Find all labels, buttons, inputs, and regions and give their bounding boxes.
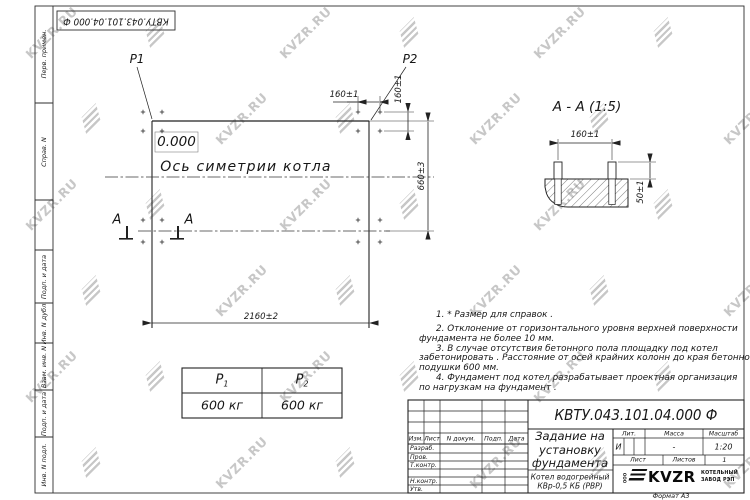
masshtab-value: 1:20 <box>715 442 733 451</box>
side-label-sprav-n: Справ. N <box>40 137 48 167</box>
note-line-4: 3. В случае отсутствия бетонного пола пл… <box>436 344 718 354</box>
note-line-1: 1. * Размер для справок . <box>436 310 553 320</box>
logo-subtitle-1: КОТЕЛЬНЫЙ <box>701 471 738 476</box>
load-point-p2-label: P2 <box>403 52 418 66</box>
drawing-linework <box>0 0 750 500</box>
side-label-podp-data-1: Подп. и дата <box>40 254 48 298</box>
row-tkontr: Т.контр. <box>410 462 437 469</box>
side-label-perv-primen: Перв. примен. <box>40 30 48 79</box>
product-line-2: КВр-0,5 КБ (РВР) <box>537 481 602 490</box>
dim-160-right: 160±1 <box>394 75 404 104</box>
section-view-lines <box>545 162 628 207</box>
side-label-vzam-inv: Взам. инв. N <box>40 345 48 387</box>
col-izm: Изм. <box>409 436 424 443</box>
elevation-mark: 0.000 <box>157 134 196 150</box>
format-label: Формат А3 <box>652 492 689 500</box>
load-table-value-p2: 600 кг <box>281 398 323 413</box>
note-line-5: забетонировать . Расстояние от осей край… <box>419 353 750 363</box>
section-dim-50: 50±1 <box>636 180 646 203</box>
side-label-podp-data-2: Подп. и дата <box>40 391 48 435</box>
title-line-2: установку <box>539 443 601 457</box>
dim-660: 660±3 <box>417 162 427 191</box>
row-razrab: Разраб. <box>410 445 434 452</box>
listov-value: 1 <box>722 456 726 464</box>
row-nkontr: Н.контр. <box>410 478 438 485</box>
load-table-header-p1: P1 <box>216 373 229 388</box>
load-point-p1-label: P1 <box>130 52 145 66</box>
load-table-header-p2: P2 <box>296 373 309 388</box>
drawing-sheet: KVZR.RUKVZR.RUKVZR.RUKVZR.RUKVZR.RUKVZR.… <box>0 0 750 500</box>
dim-2160: 2160±2 <box>244 312 278 322</box>
logo-ooo-prefix: ООО <box>623 473 628 483</box>
title-block-doc-number: КВТУ.043.101.04.000 Ф <box>555 406 718 424</box>
dim-160-top: 160±1 <box>330 90 359 100</box>
side-label-inv-podl: Инв. N подл. <box>40 444 48 487</box>
title-line-3: фундамента <box>532 456 608 470</box>
section-letter-right: A <box>185 213 194 228</box>
row-utv: Утв. <box>410 486 423 493</box>
lit-label: Лит. <box>622 430 636 437</box>
note-line-7: 4. Фундамент под котел разрабатывает про… <box>436 373 737 383</box>
list-label: Лист <box>630 457 646 464</box>
title-line-1: Задание на <box>535 429 605 443</box>
boiler-symmetry-axis-label: Ось симетрии котла <box>160 159 331 175</box>
note-line-6: подушки 600 мм. <box>419 363 499 373</box>
col-list: Лист <box>424 436 440 443</box>
section-letter-left: A <box>113 213 122 228</box>
masshtab-label: Масштаб <box>709 430 738 437</box>
logo-subtitle-2: ЗАВОД РЭП <box>701 478 735 483</box>
kvzr-logo-text: KVZR <box>648 468 696 486</box>
note-line-2: 2. Отклонение от горизонтального уровня … <box>436 324 738 334</box>
col-data: Дата <box>508 436 524 443</box>
col-podp: Подп. <box>484 436 503 443</box>
note-line-8: по нагрузкам на фундамент . <box>419 383 557 393</box>
plan-view-lines <box>105 67 434 328</box>
massa-label: Масса <box>664 430 684 437</box>
top-stamp-doc-number: КВТУ.043.101.04.000 Ф <box>63 15 168 26</box>
section-view-title: А - А (1:5) <box>553 99 621 115</box>
massa-value: - <box>673 442 676 451</box>
col-n-dokum: N докум. <box>447 436 476 443</box>
note-line-3: фундамента не более 10 мм. <box>419 334 554 344</box>
listov-label: Листов <box>672 457 695 464</box>
row-prov: Пров. <box>410 454 428 461</box>
side-label-inv-dubl: Инв. N дубл. <box>40 302 48 345</box>
lit-value: И <box>616 442 622 451</box>
load-table-value-p1: 600 кг <box>201 398 243 413</box>
section-dim-160: 160±1 <box>571 130 600 140</box>
